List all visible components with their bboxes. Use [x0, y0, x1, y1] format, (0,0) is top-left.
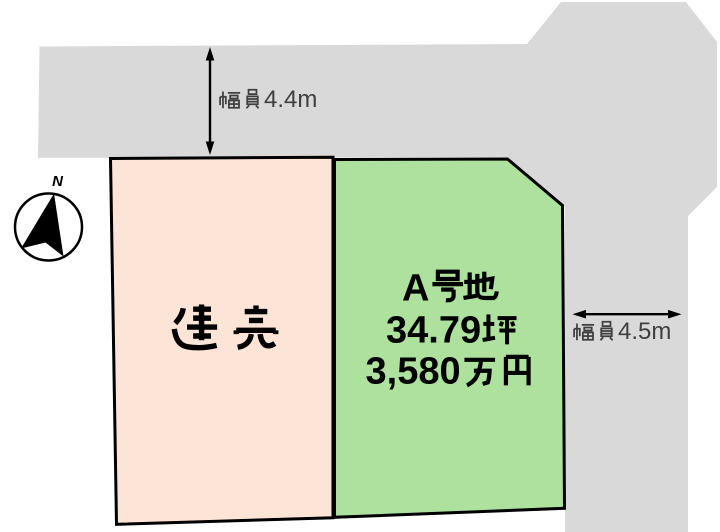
svg-text:N: N	[52, 173, 64, 190]
svg-text:3,580: 3,580	[366, 351, 461, 393]
svg-text:4.4m: 4.4m	[264, 86, 317, 113]
svg-text:4.5m: 4.5m	[618, 318, 671, 345]
svg-text:34.79: 34.79	[386, 310, 481, 352]
svg-text:A: A	[402, 268, 429, 310]
